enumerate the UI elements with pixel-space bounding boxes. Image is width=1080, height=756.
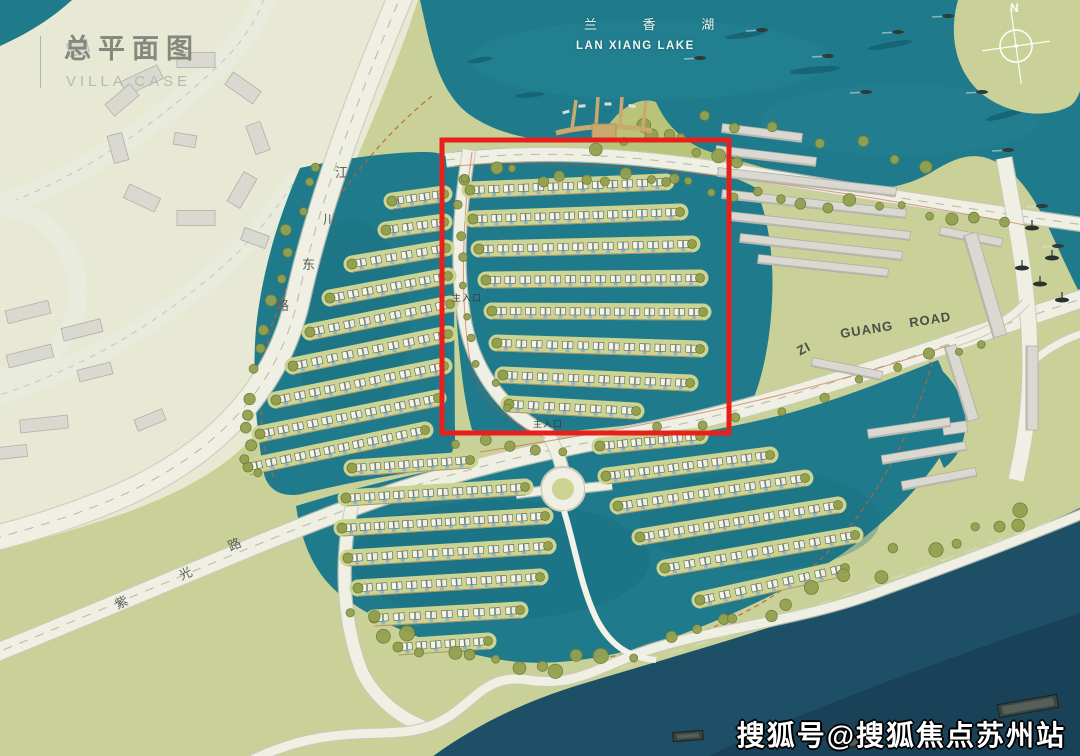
title-divider — [40, 36, 41, 88]
site-plan-map: 总平面图 VILLA CASE 兰 香 湖 LAN XIANG LAKE N 江… — [0, 0, 1080, 756]
map-canvas — [0, 0, 1080, 756]
